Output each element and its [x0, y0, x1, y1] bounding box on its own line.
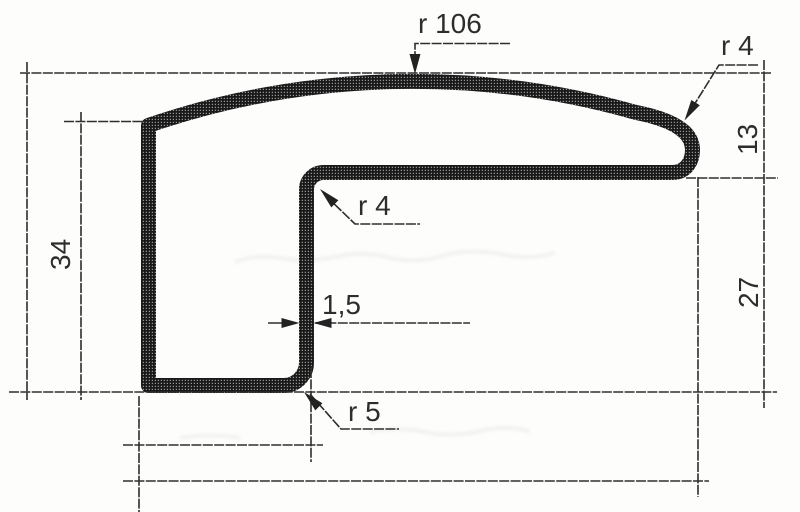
svg-text:r 106: r 106	[418, 8, 482, 39]
svg-text:r 4: r 4	[358, 190, 391, 221]
svg-text:13: 13	[732, 124, 763, 155]
svg-text:27: 27	[733, 277, 764, 308]
svg-text:1,5: 1,5	[322, 289, 361, 320]
svg-text:r 4: r 4	[721, 30, 754, 61]
svg-text:r 5: r 5	[348, 396, 381, 427]
svg-text:34: 34	[45, 239, 76, 270]
